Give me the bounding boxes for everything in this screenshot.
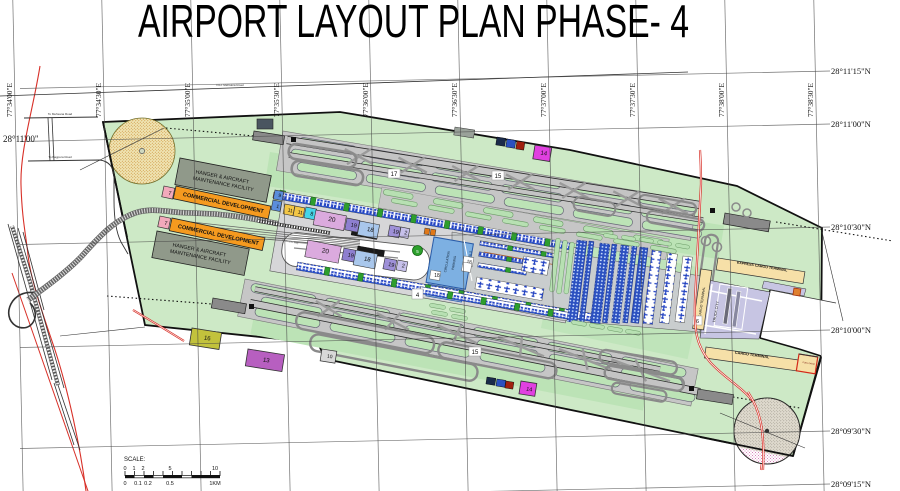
svg-text:77°35'00"E: 77°35'00"E [183,83,192,117]
svg-text:1: 1 [132,466,135,472]
svg-text:28°09'30"N: 28°09'30"N [831,426,871,436]
svg-text:77°38'00"E: 77°38'00"E [717,83,726,117]
svg-text:To Bagpura Road: To Bagpura Road [48,155,72,159]
svg-text:77°38'30"E: 77°38'30"E [806,83,815,117]
svg-text:28°10'00"N: 28°10'00"N [831,325,871,335]
svg-text:77°34'30"E: 77°34'30"E [94,83,103,117]
svg-text:14: 14 [526,387,533,394]
svg-text:77°36'00"E: 77°36'00"E [361,83,370,117]
svg-text:77°35'30"E: 77°35'30"E [272,83,281,117]
svg-text:28°11'00": 28°11'00" [3,134,39,144]
svg-text:28°09'15"N: 28°09'15"N [831,479,871,489]
svg-text:17: 17 [391,172,398,178]
svg-text:19: 19 [392,229,399,236]
svg-text:19: 19 [388,262,395,269]
svg-text:0.2: 0.2 [144,481,152,487]
svg-text:28°10'30"N: 28°10'30"N [831,222,871,232]
svg-text:77°34'00"E: 77°34'00"E [5,83,14,117]
svg-text:0.5: 0.5 [166,481,174,487]
svg-text:15: 15 [472,350,479,356]
svg-text:6: 6 [696,319,699,325]
svg-text:10: 10 [212,466,218,472]
svg-text:28°11'15"N: 28°11'15"N [831,66,871,76]
svg-text:77°37'30"E: 77°37'30"E [628,83,637,117]
svg-text:AIRPORT LAYOUT PLAN PHASE- 4: AIRPORT LAYOUT PLAN PHASE- 4 [138,0,689,47]
svg-text:5: 5 [168,466,171,472]
svg-text:To Mehsana Road: To Mehsana Road [48,112,73,116]
svg-text:19: 19 [347,252,354,259]
svg-text:77°36'30"E: 77°36'30"E [450,83,459,117]
svg-text:0.1: 0.1 [134,481,142,487]
svg-text:SCALE:: SCALE: [124,457,146,463]
svg-text:15: 15 [495,174,502,180]
svg-text:0: 0 [123,481,126,487]
svg-text:19: 19 [350,222,357,229]
svg-text:77°37'00"E: 77°37'00"E [539,83,548,117]
svg-text:28°11'00"N: 28°11'00"N [831,119,871,129]
svg-text:18: 18 [434,273,440,279]
svg-text:1KM: 1KM [209,481,221,487]
